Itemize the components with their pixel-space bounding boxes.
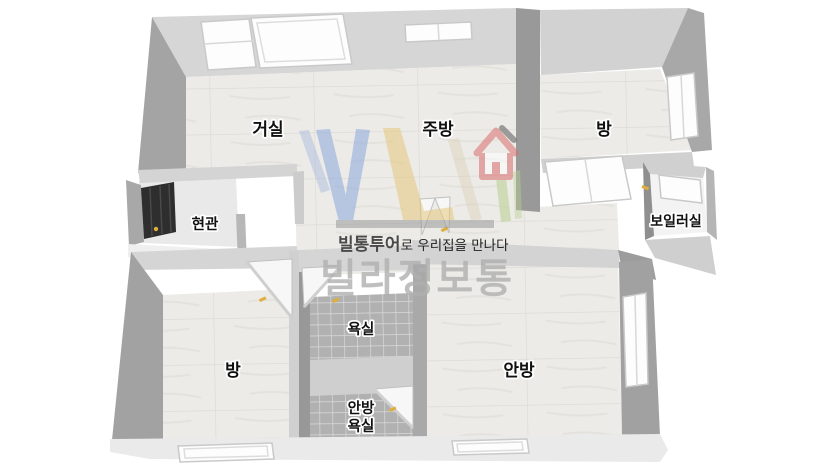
label-entrance: 현관	[192, 216, 219, 233]
living-window-small	[201, 19, 256, 70]
label-master-bedroom: 안방	[503, 361, 535, 381]
label-master-bathroom-line1: 안방	[348, 399, 375, 417]
entrance-door-handle	[154, 227, 158, 231]
label-master-bathroom-line2: 욕실	[348, 418, 375, 435]
logo-underline-bar	[336, 220, 494, 228]
boiler-bottom-wall	[645, 236, 716, 275]
bedroom-bottom-left-left-wall	[112, 252, 163, 442]
floor-plan-canvas: 빌통투어로 우리집을 만나다 빌라정보통 거실 주방 방 보일러실 현관 욕실 …	[0, 0, 840, 472]
label-bathroom: 욕실	[348, 321, 375, 338]
boiler-right-wall	[706, 167, 717, 240]
watermark-tagline: 빌통투어로 우리집을 만나다	[338, 235, 509, 255]
label-living-room: 거실	[252, 120, 283, 140]
watermark-tagline-suffix: 로 우리집을 만나다	[401, 238, 510, 254]
watermark-tagline-brand: 빌통투어	[338, 235, 401, 255]
kitchen-top-window-mullion	[438, 24, 439, 40]
boiler-window	[659, 175, 702, 203]
logo-house-door	[492, 162, 500, 177]
floor-plan-stage: 빌통투어로 우리집을 만나다 빌라정보통 거실 주방 방 보일러실 현관 욕실 …	[0, 0, 840, 472]
label-boiler-room: 보일러실	[650, 214, 702, 230]
label-bedroom-bottom-left: 방	[225, 361, 241, 381]
label-bedroom-top-right: 방	[596, 120, 612, 140]
watermark-brand-name: 빌라정보통	[320, 256, 514, 302]
hall-corner-wall	[293, 171, 304, 224]
label-kitchen: 주방	[422, 120, 454, 140]
